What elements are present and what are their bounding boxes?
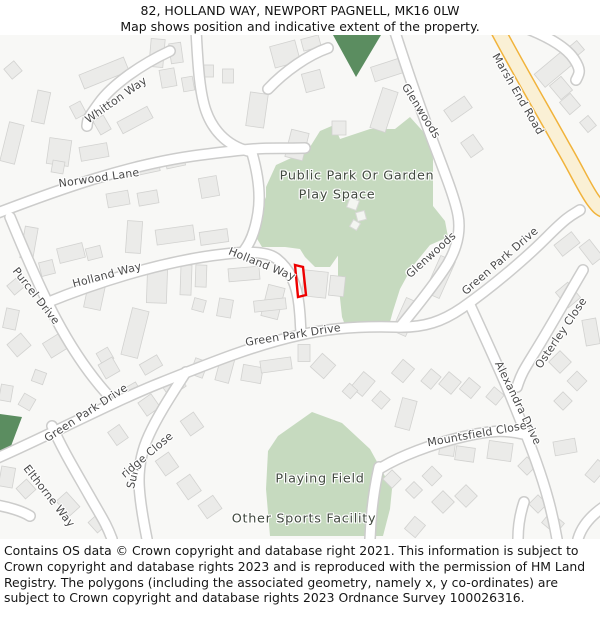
copyright-notice: Contains OS data © Crown copyright and d… (0, 539, 600, 606)
report-header: 82, HOLLAND WAY, NEWPORT PAGNELL, MK16 0… (0, 0, 600, 35)
map-canvas: Whitton Way Norwood Lane Holland Way Hol… (0, 35, 600, 539)
area-label-playing-field: Playing Field (275, 472, 364, 487)
area-label-public-park: Public Park Or Garden (280, 169, 435, 184)
area-label-other-sports: Other Sports Facility (232, 512, 377, 527)
page-subtitle: Map shows position and indicative extent… (0, 19, 600, 35)
area-label-play-space: Play Space (299, 188, 376, 203)
page-title: 82, HOLLAND WAY, NEWPORT PAGNELL, MK16 0… (0, 3, 600, 19)
